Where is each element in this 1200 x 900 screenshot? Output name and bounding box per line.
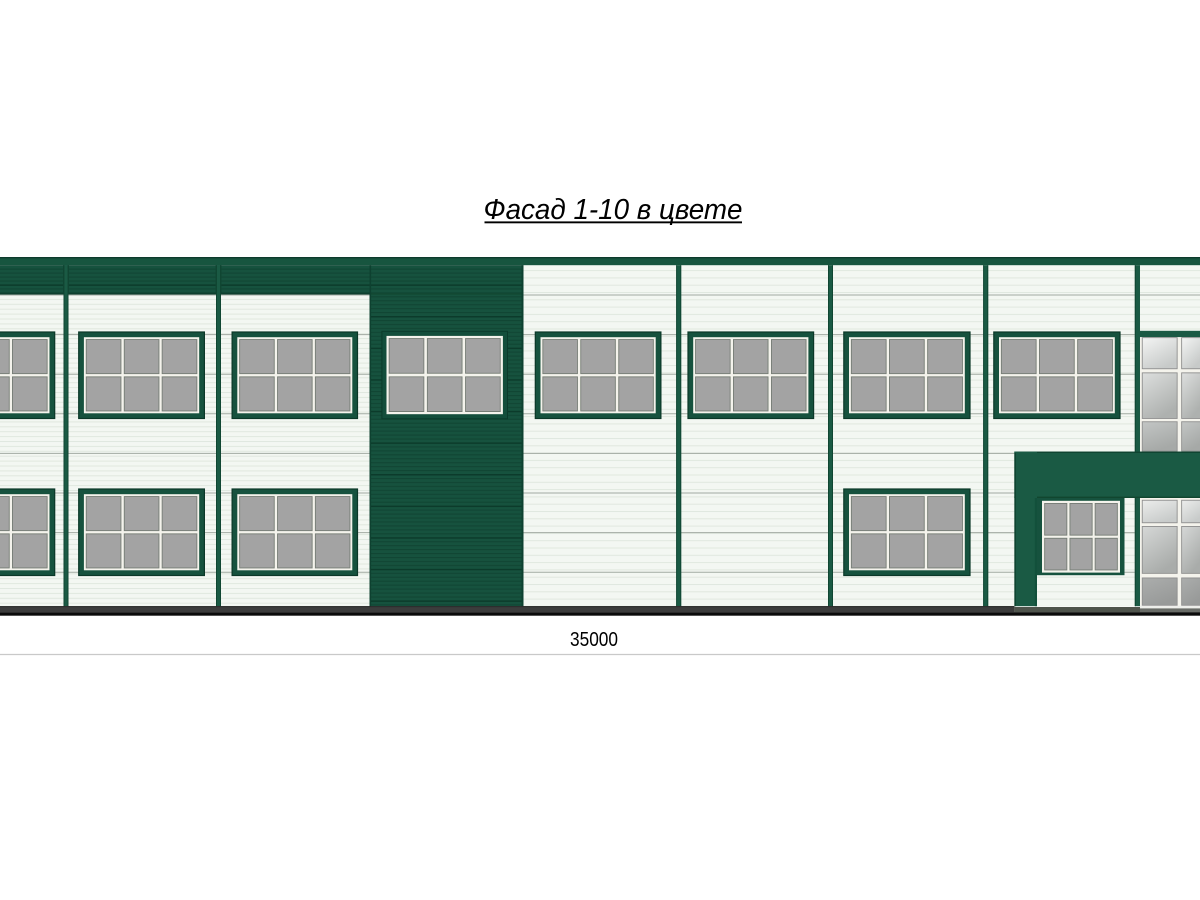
svg-text:35000: 35000 xyxy=(570,628,618,651)
svg-text:Фасад 1-10 в цвете: Фасад 1-10 в цвете xyxy=(484,194,743,226)
